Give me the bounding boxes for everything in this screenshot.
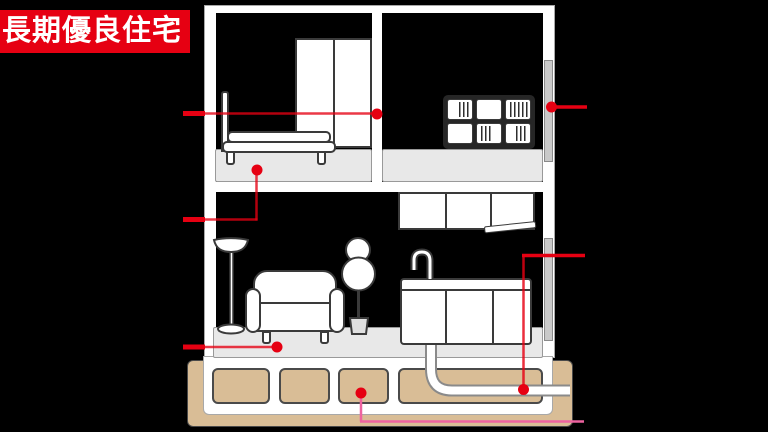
floor-lamp-icon bbox=[214, 238, 248, 333]
callout-dot-2f-floor bbox=[252, 165, 263, 176]
callout-dot-1f-floor bbox=[272, 342, 283, 353]
callout-drain-pipe bbox=[522, 255, 585, 390]
callout-dot-insulation bbox=[546, 102, 557, 113]
badge-label: 長期優良住宅 bbox=[2, 15, 182, 47]
callout-dot-pipe bbox=[518, 384, 529, 395]
callout-2f-floor bbox=[183, 170, 258, 221]
title-badge: 長期優良住宅 bbox=[0, 10, 190, 53]
callout-dot-partition bbox=[372, 109, 383, 120]
callout-foundation-block bbox=[360, 393, 584, 422]
drain-pipe-icon bbox=[431, 345, 570, 391]
faucet-icon bbox=[414, 252, 430, 279]
plant-icon bbox=[342, 238, 375, 334]
diagram-overlay bbox=[0, 0, 768, 432]
housing-cross-section-diagram: 長期優良住宅 bbox=[0, 0, 768, 432]
callout-dot-foundation bbox=[356, 388, 367, 399]
